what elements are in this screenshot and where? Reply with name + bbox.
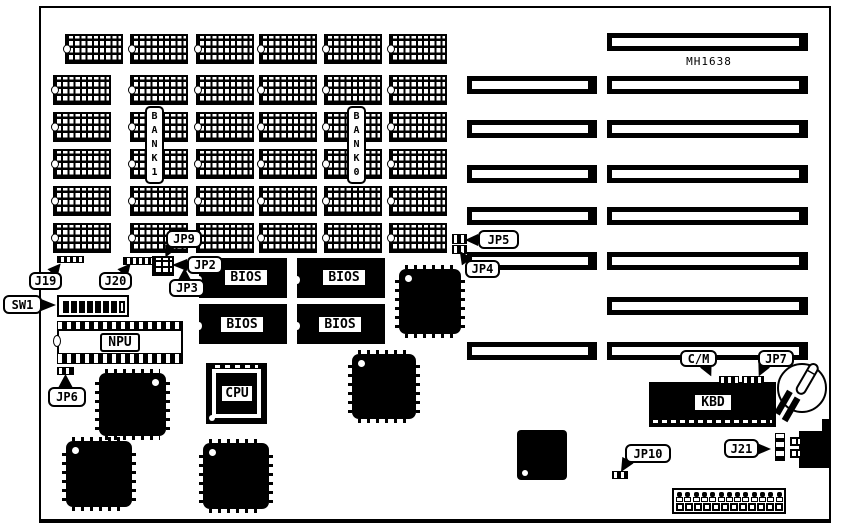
jp7-jumper [742, 376, 764, 384]
memory-chip [389, 34, 447, 64]
callout-jp9: JP9 [166, 230, 202, 248]
edge-tab-2 [790, 449, 802, 458]
callout-cm: C/M [680, 350, 717, 367]
connector-pin-base [718, 497, 725, 502]
isa-slot [607, 33, 808, 51]
isa-slot [607, 76, 808, 94]
cm-jumper [719, 376, 739, 384]
pin1-dot [152, 379, 159, 386]
cpu-label: CPU [220, 384, 254, 403]
callout-j21: J21 [724, 439, 759, 458]
memory-chip [389, 149, 447, 179]
chip-plain [517, 430, 567, 480]
connector-pin-base [742, 497, 749, 502]
callout-j20: J20 [99, 272, 132, 290]
bank1-label: BANK1 [145, 106, 164, 184]
callout-jp5: JP5 [478, 230, 519, 249]
bios-chip-2-label: BIOS [321, 268, 367, 287]
jp6-jumper [57, 367, 74, 375]
connector-socket [766, 503, 774, 511]
memory-chip [389, 186, 447, 216]
connector-pin-base [684, 497, 691, 502]
isa-slot [607, 165, 808, 183]
callout-j19: J19 [29, 272, 62, 290]
isa-slot [607, 252, 808, 270]
memory-chip [259, 149, 317, 179]
memory-chip [259, 75, 317, 105]
kbd-chip: KBD [649, 382, 776, 427]
connector-pin-base [734, 497, 741, 502]
memory-chip [53, 112, 111, 142]
cpu-socket-pins [215, 365, 258, 368]
isa-slot [607, 120, 808, 138]
memory-chip [259, 34, 317, 64]
memory-chip [259, 223, 317, 253]
memory-chip [259, 186, 317, 216]
callout-jp10: JP10 [625, 444, 671, 463]
connector-socket [676, 503, 684, 511]
memory-chip [259, 112, 317, 142]
connector-socket [739, 503, 747, 511]
connector-pin-base [693, 497, 700, 502]
connector-pin-base [759, 497, 766, 502]
power-connector [672, 488, 786, 514]
callout-jp7: JP7 [758, 350, 794, 367]
pin1-dot [209, 449, 216, 456]
j21-header [775, 433, 785, 461]
isa-slot [467, 76, 597, 94]
memory-chip [196, 112, 254, 142]
isa-slot [607, 297, 808, 315]
connector-socket [757, 503, 765, 511]
memory-chip [324, 34, 382, 64]
board-id-text: MH1638 [682, 55, 736, 68]
cpu-socket: CPU [206, 363, 267, 424]
memory-chip [389, 112, 447, 142]
connector-socket [703, 503, 711, 511]
qfp-chip-b [352, 354, 416, 419]
connector-pin-base [726, 497, 733, 502]
connector-socket [721, 503, 729, 511]
bios-chip-4-label: BIOS [317, 315, 363, 334]
isa-slot [467, 165, 597, 183]
memory-chip [130, 75, 188, 105]
memory-chip [53, 223, 111, 253]
bios-chip-3: BIOS [199, 304, 287, 344]
callout-jp6: JP6 [48, 387, 86, 407]
motherboard-diagram: MH1638 BANK1 BANK0 BIOS BIOS BIOS BIOS [0, 0, 842, 527]
memory-chip [53, 186, 111, 216]
qfp-chip-a [399, 269, 461, 334]
connector-pin-base [701, 497, 708, 502]
memory-chip [196, 149, 254, 179]
memory-chip [196, 186, 254, 216]
callout-jp4: JP4 [465, 260, 500, 278]
jp4-jumper [452, 245, 467, 254]
connector-pin-base [676, 497, 683, 502]
isa-slot [467, 120, 597, 138]
pin1-dot [72, 447, 79, 454]
memory-chip [324, 75, 382, 105]
jp10-jumper [612, 471, 628, 479]
connector-pin-base [751, 497, 758, 502]
callout-jp3: JP3 [169, 279, 205, 297]
bios-chip-3-label: BIOS [219, 315, 265, 334]
kbd-label: KBD [693, 393, 733, 412]
isa-slot [467, 207, 597, 225]
qfp-chip-c [99, 373, 166, 436]
memory-chip [196, 75, 254, 105]
pin1-dot [209, 415, 215, 421]
connector-socket [712, 503, 720, 511]
qfp-chip-d [66, 441, 132, 507]
connector-pin-base [709, 497, 716, 502]
memory-chip [389, 75, 447, 105]
jp9-jp2-jp3-jumper-block [152, 256, 174, 276]
memory-chip [324, 223, 382, 253]
edge-connector [799, 431, 831, 468]
memory-chip [65, 34, 123, 64]
bios-chip-4: BIOS [297, 304, 385, 344]
bank0-label: BANK0 [347, 106, 366, 184]
memory-chip [196, 34, 254, 64]
jp5-jumper [452, 234, 467, 244]
connector-socket [748, 503, 756, 511]
npu-notch [53, 335, 61, 347]
connector-pin-base [776, 497, 783, 502]
bios-chip-1-label: BIOS [223, 268, 269, 287]
isa-slot [607, 207, 808, 225]
connector-socket [730, 503, 738, 511]
npu-chip: NPU [57, 321, 183, 364]
memory-chip [53, 149, 111, 179]
memory-chip [130, 34, 188, 64]
memory-chip [130, 186, 188, 216]
memory-chip [324, 186, 382, 216]
qfp-chip-e [203, 443, 269, 509]
pin1-dot [405, 275, 412, 282]
npu-label: NPU [100, 333, 140, 352]
isa-slot [467, 342, 597, 360]
pin1-dot [522, 470, 528, 476]
memory-chip [196, 223, 254, 253]
kbd-chip-pins [653, 420, 772, 423]
bios-chip-2: BIOS [297, 258, 385, 298]
callout-sw1: SW1 [3, 295, 42, 314]
pin1-dot [358, 360, 365, 367]
connector-socket [694, 503, 702, 511]
connector-pin-base [767, 497, 774, 502]
j19-header [57, 256, 84, 263]
sw1-dip-switch [57, 295, 129, 317]
memory-chip [53, 75, 111, 105]
memory-chip [389, 223, 447, 253]
connector-socket [685, 503, 693, 511]
edge-tab-1 [790, 437, 802, 446]
connector-socket [775, 503, 783, 511]
callout-jp2: JP2 [187, 256, 223, 274]
